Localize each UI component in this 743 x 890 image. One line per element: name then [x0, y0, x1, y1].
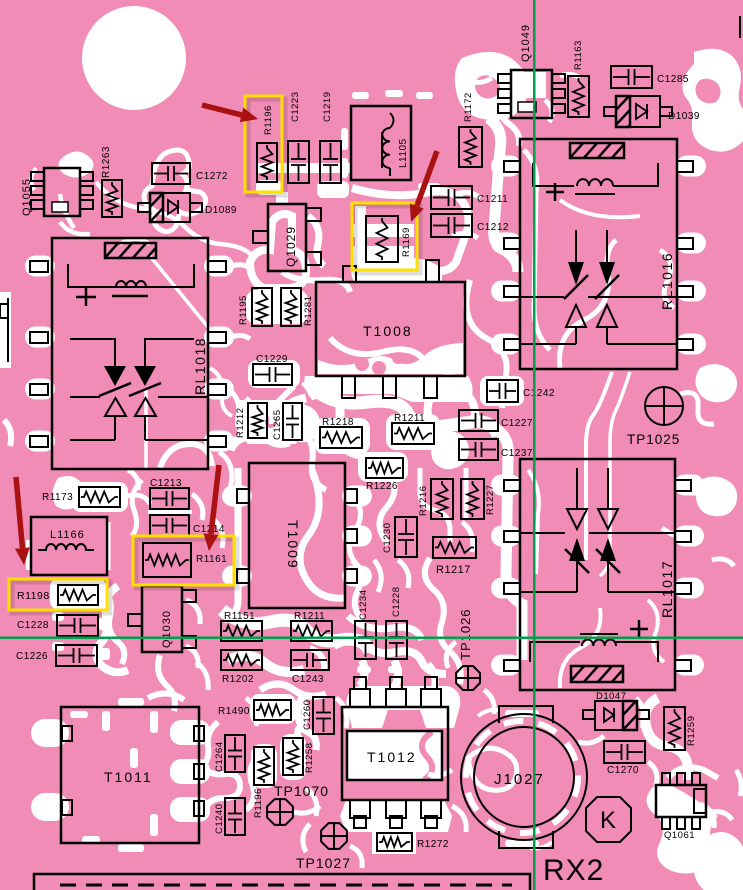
svg-text:C1265: C1265 — [272, 410, 283, 441]
svg-text:C1264: C1264 — [214, 742, 225, 773]
svg-text:Q1029: Q1029 — [284, 226, 298, 267]
svg-text:TP1027: TP1027 — [296, 855, 351, 871]
svg-text:T1009: T1009 — [285, 520, 301, 570]
svg-text:C1211: C1211 — [477, 194, 508, 205]
svg-text:Q1055: Q1055 — [21, 178, 33, 216]
svg-text:C1285: C1285 — [657, 74, 689, 85]
svg-text:C1230: C1230 — [382, 523, 393, 554]
svg-text:R1169: R1169 — [401, 227, 412, 257]
svg-text:RL1018: RL1018 — [192, 337, 208, 395]
svg-text:TP1025: TP1025 — [627, 432, 680, 447]
svg-text:R1196: R1196 — [263, 105, 274, 135]
svg-text:C1243: C1243 — [292, 674, 324, 685]
svg-text:Q1030: Q1030 — [161, 610, 173, 648]
svg-text:R1196: R1196 — [253, 788, 264, 818]
svg-text:Q1049: Q1049 — [520, 24, 532, 62]
svg-text:T1008: T1008 — [363, 323, 413, 339]
svg-text:C1260: C1260 — [302, 700, 313, 731]
svg-text:R1198: R1198 — [17, 590, 50, 602]
svg-text:R1212: R1212 — [235, 408, 246, 439]
svg-text:RL1017: RL1017 — [659, 560, 675, 618]
svg-text:R1281: R1281 — [303, 296, 314, 327]
svg-text:D1089: D1089 — [205, 205, 237, 216]
svg-text:D1039: D1039 — [668, 111, 700, 122]
svg-text:K: K — [600, 807, 616, 834]
svg-text:R1216: R1216 — [418, 486, 429, 517]
svg-text:C1219: C1219 — [322, 92, 333, 123]
svg-text:R1163: R1163 — [573, 40, 584, 70]
svg-text:RL1016: RL1016 — [659, 252, 675, 310]
svg-text:C1234: C1234 — [358, 590, 369, 621]
svg-text:TP1070: TP1070 — [274, 783, 329, 799]
svg-text:C1270: C1270 — [607, 765, 639, 776]
svg-text:R1272: R1272 — [417, 839, 449, 850]
svg-text:R1227: R1227 — [485, 485, 496, 516]
svg-text:L1105: L1105 — [398, 138, 409, 168]
svg-text:R1217: R1217 — [436, 564, 471, 576]
svg-text:R1263: R1263 — [101, 146, 112, 178]
svg-text:R1173: R1173 — [42, 492, 73, 503]
svg-text:TP1026: TP1026 — [458, 608, 473, 660]
svg-text:C1227: C1227 — [501, 418, 533, 429]
svg-text:R1172: R1172 — [463, 92, 474, 122]
svg-text:C1272: C1272 — [196, 171, 228, 182]
svg-text:R1258: R1258 — [304, 743, 315, 774]
svg-text:T1011: T1011 — [104, 769, 153, 785]
svg-text:C1228: C1228 — [391, 587, 402, 618]
svg-text:C1212: C1212 — [477, 222, 509, 233]
svg-text:T1012: T1012 — [367, 749, 417, 765]
svg-text:L1166: L1166 — [50, 529, 85, 541]
svg-text:R1259: R1259 — [686, 716, 697, 747]
svg-text:C1228: C1228 — [17, 620, 49, 631]
svg-text:Q1061: Q1061 — [664, 830, 695, 841]
svg-text:C1242: C1242 — [523, 388, 555, 399]
svg-text:C1226: C1226 — [16, 651, 48, 662]
svg-text:R1161: R1161 — [196, 554, 227, 565]
svg-text:RX2: RX2 — [543, 854, 604, 887]
svg-text:C1237: C1237 — [501, 448, 533, 459]
svg-text:C1240: C1240 — [214, 804, 225, 835]
svg-text:R1195: R1195 — [238, 295, 249, 325]
svg-text:R1490: R1490 — [218, 706, 250, 717]
svg-text:C1223: C1223 — [290, 92, 301, 123]
svg-text:J1027: J1027 — [494, 771, 545, 788]
svg-text:R1226: R1226 — [366, 481, 398, 492]
svg-text:R1202: R1202 — [222, 674, 254, 685]
